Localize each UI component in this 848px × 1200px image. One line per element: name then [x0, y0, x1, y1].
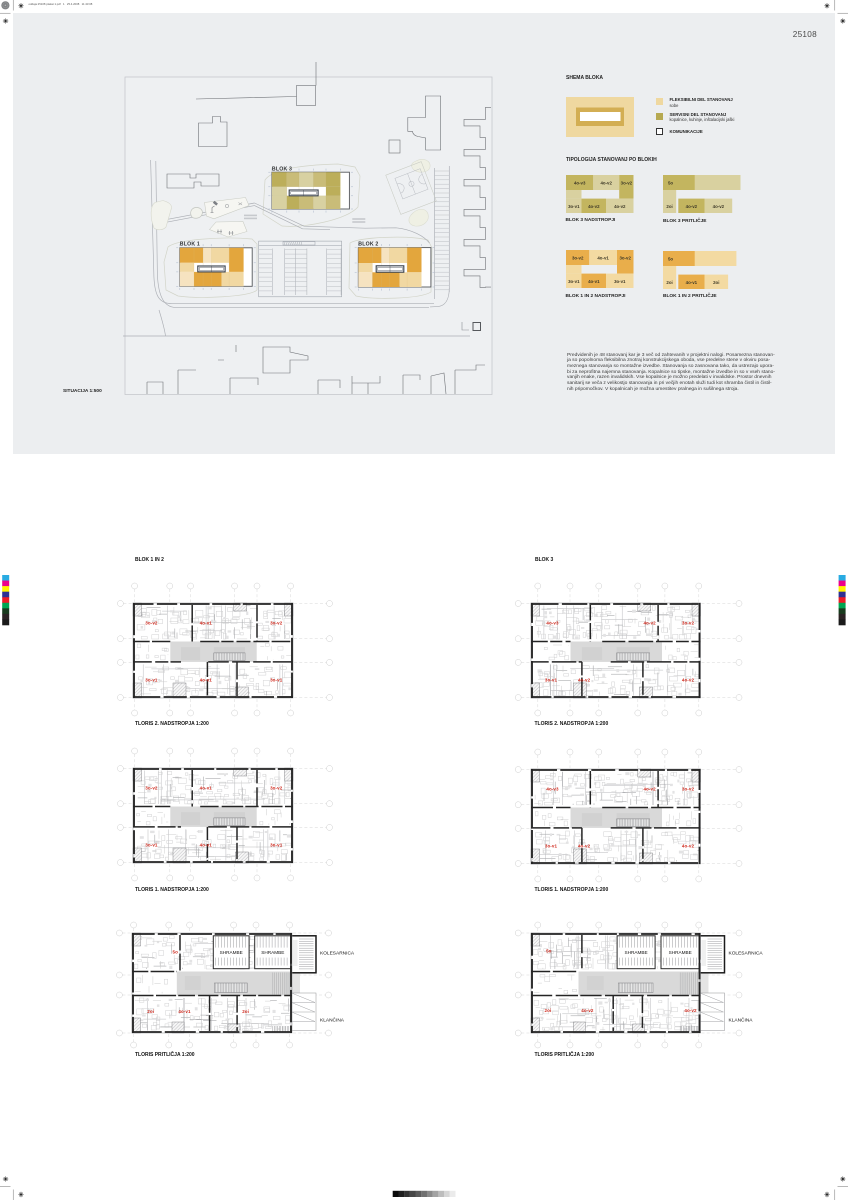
svg-text:4o-v1: 4o-v1 — [588, 279, 600, 284]
svg-text:2oi: 2oi — [713, 280, 719, 285]
svg-text:3o-v1: 3o-v1 — [544, 677, 557, 682]
svg-text:3o-v1: 3o-v1 — [568, 279, 580, 284]
svg-text:4o-v2: 4o-v2 — [684, 1008, 697, 1013]
svg-text:4o-v1: 4o-v1 — [178, 1009, 191, 1014]
svg-text:3o-v2: 3o-v2 — [620, 180, 632, 185]
svg-text:4o-v1: 4o-v1 — [199, 785, 212, 790]
svg-text:4o-v2: 4o-v2 — [577, 843, 590, 848]
svg-text:4o-v2: 4o-v2 — [713, 204, 725, 209]
svg-text:4o-v2: 4o-v2 — [643, 786, 656, 791]
svg-text:4o-v1: 4o-v1 — [597, 256, 609, 261]
svg-text:KOLESARNICA: KOLESARNICA — [728, 951, 763, 957]
svg-text:2oi: 2oi — [544, 1008, 551, 1013]
svg-text:KLANČINA: KLANČINA — [728, 1017, 753, 1024]
svg-text:3o-v2: 3o-v2 — [270, 785, 283, 790]
svg-text:3o-v2: 3o-v2 — [619, 256, 631, 261]
svg-text:4o-v2: 4o-v2 — [600, 180, 612, 185]
svg-text:SHRAMBE: SHRAMBE — [261, 950, 284, 955]
svg-text:SHRAMBE: SHRAMBE — [668, 950, 691, 955]
svg-text:KOLESARNICA: KOLESARNICA — [320, 951, 355, 957]
svg-text:4o-v1: 4o-v1 — [199, 677, 212, 682]
svg-text:5o: 5o — [668, 181, 673, 186]
svg-text:4o-v2: 4o-v2 — [614, 203, 626, 208]
svg-text:BLOK 1: BLOK 1 — [180, 242, 200, 248]
svg-text:4o-v2: 4o-v2 — [681, 677, 694, 682]
svg-text:5o: 5o — [172, 950, 178, 955]
svg-text:3o-v2: 3o-v2 — [571, 256, 583, 261]
svg-text:4o-v2: 4o-v2 — [588, 203, 600, 208]
svg-text:4o-v2: 4o-v2 — [686, 204, 698, 209]
svg-text:4o-v2: 4o-v2 — [681, 843, 694, 848]
svg-text:3o-v2: 3o-v2 — [145, 620, 158, 625]
svg-text:3o-v1: 3o-v1 — [544, 843, 557, 848]
svg-text:3o-v2: 3o-v2 — [145, 785, 158, 790]
svg-text:3o-v1: 3o-v1 — [568, 203, 580, 208]
svg-text:3o-v1: 3o-v1 — [145, 677, 158, 682]
svg-text:4o-v3: 4o-v3 — [546, 786, 559, 791]
svg-text:3o-v1: 3o-v1 — [614, 279, 626, 284]
svg-text:4o-v1: 4o-v1 — [686, 280, 698, 285]
svg-text:BLOK 3: BLOK 3 — [272, 166, 292, 172]
svg-text:4o-v1: 4o-v1 — [199, 620, 212, 625]
svg-text:KLANČINA: KLANČINA — [320, 1017, 345, 1024]
svg-text:4o-v2: 4o-v2 — [577, 677, 590, 682]
svg-text:3o-v2: 3o-v2 — [681, 786, 694, 791]
svg-text:SHRAMBE: SHRAMBE — [220, 950, 243, 955]
svg-text:3o-v2: 3o-v2 — [270, 620, 283, 625]
svg-text:3o-v2: 3o-v2 — [681, 620, 694, 625]
svg-text:2oi: 2oi — [242, 1009, 249, 1014]
svg-text:2oi: 2oi — [666, 280, 672, 285]
svg-text:2oi: 2oi — [147, 1009, 154, 1014]
svg-text:3o-v1: 3o-v1 — [145, 842, 158, 847]
svg-text:4o-v1: 4o-v1 — [199, 842, 212, 847]
svg-text:4o-v3: 4o-v3 — [573, 180, 585, 185]
svg-text:2oi: 2oi — [666, 204, 672, 209]
svg-text:5o: 5o — [546, 949, 552, 954]
svg-text:3o-v1: 3o-v1 — [270, 842, 283, 847]
svg-text:4o-v2: 4o-v2 — [581, 1008, 594, 1013]
svg-text:4o-v2: 4o-v2 — [643, 620, 656, 625]
svg-text:SHRAMBE: SHRAMBE — [624, 950, 647, 955]
svg-text:5o: 5o — [668, 257, 673, 262]
svg-text:4o-v3: 4o-v3 — [546, 620, 559, 625]
svg-text:BLOK 2: BLOK 2 — [358, 241, 378, 247]
svg-text:3o-v1: 3o-v1 — [270, 677, 283, 682]
